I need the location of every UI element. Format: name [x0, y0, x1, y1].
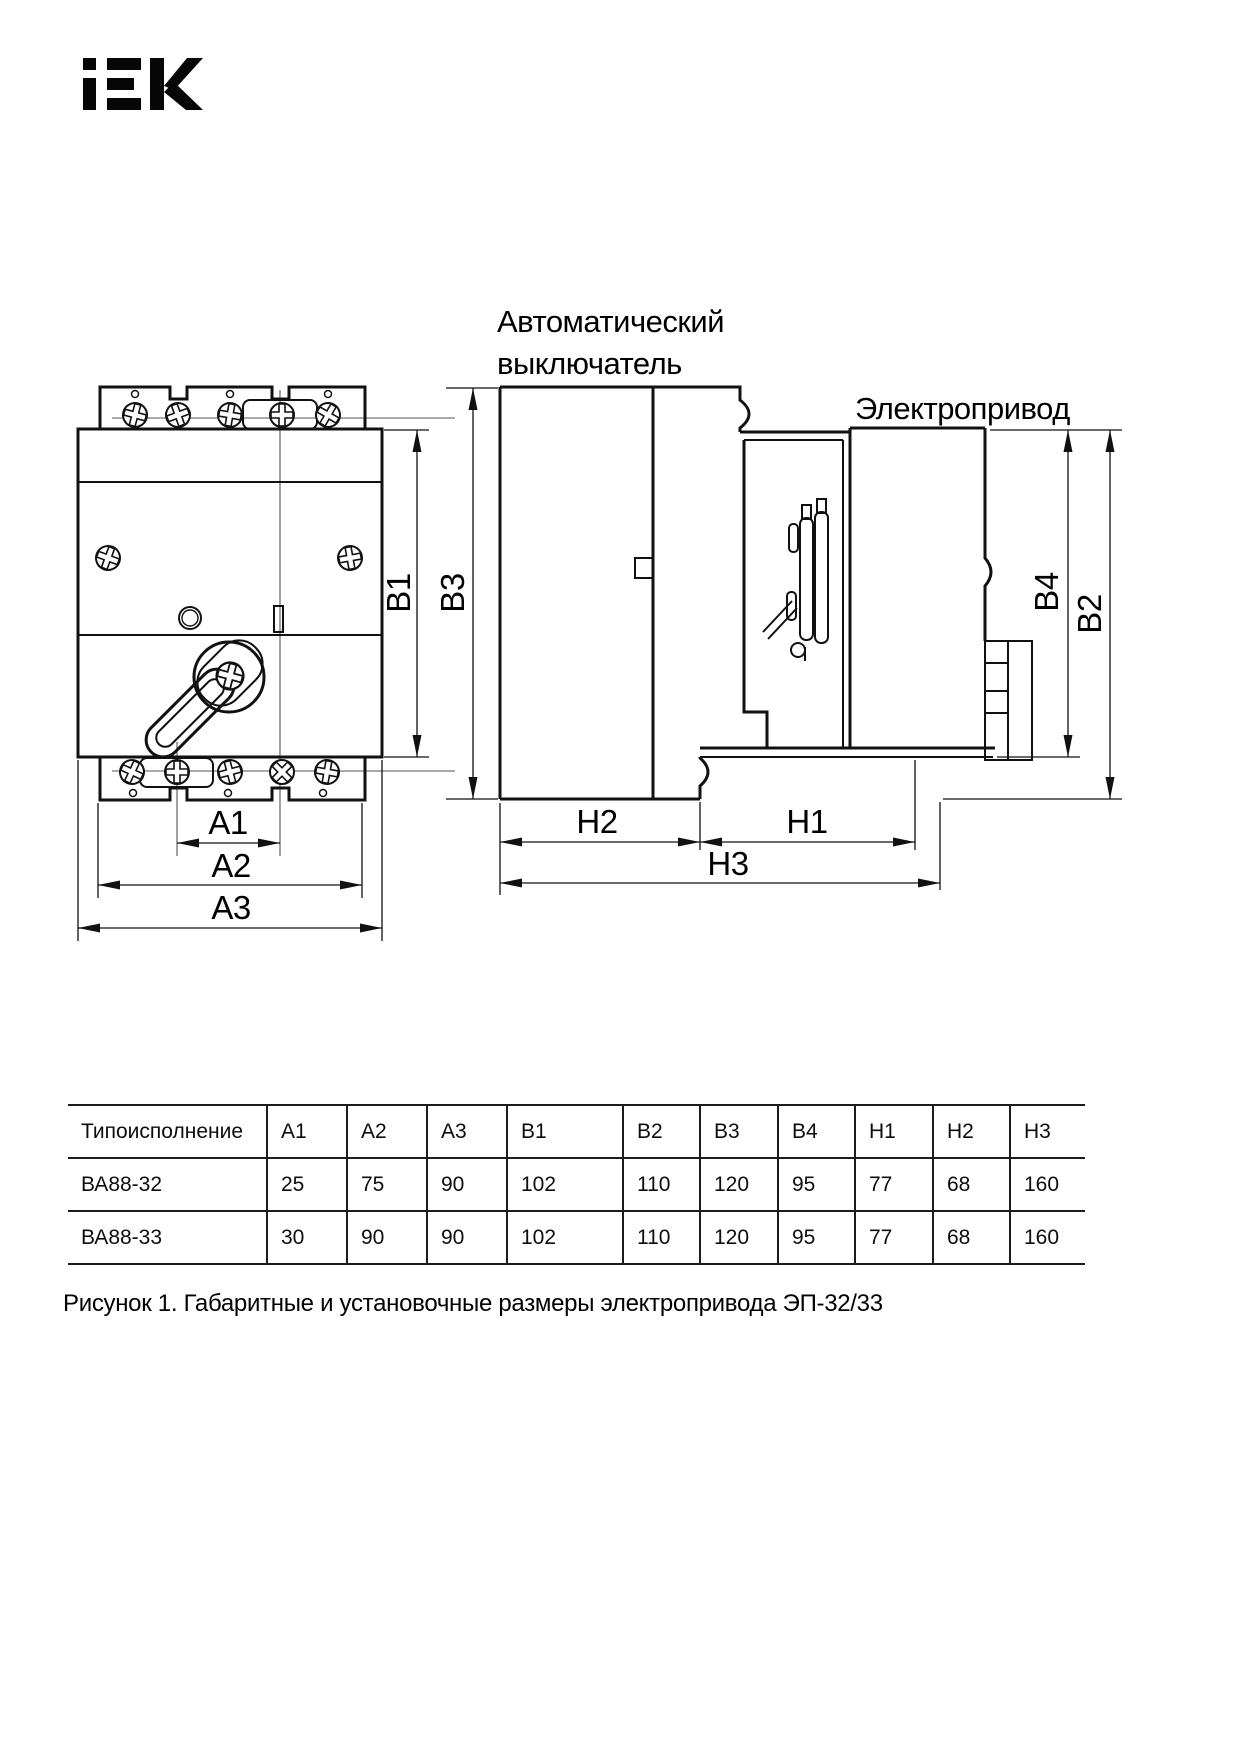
- dim-label-h1: H1: [786, 803, 827, 840]
- table-row: ВА88-33309090102110120957768160: [68, 1211, 1085, 1264]
- value-cell: 120: [700, 1211, 778, 1264]
- dim-label-b4: B4: [1028, 572, 1065, 612]
- logo-i-bar: [83, 78, 96, 110]
- dim-a1: A1: [177, 804, 280, 848]
- page: Автоматический выключатель Электропривод: [0, 0, 1237, 1747]
- dim-h3: H3: [500, 802, 940, 890]
- drive-side-profile: [843, 428, 1032, 760]
- dim-label-a1: A1: [208, 804, 247, 841]
- table-row: ВА88-32257590102110120957768160: [68, 1158, 1085, 1211]
- logo-e-mid: [107, 78, 134, 90]
- column-header-a2: A2: [347, 1105, 427, 1158]
- value-cell: 77: [855, 1158, 933, 1211]
- column-header-b4: B4: [778, 1105, 855, 1158]
- logo-k-lower-arm: [164, 82, 203, 110]
- column-header-h3: H3: [1010, 1105, 1085, 1158]
- column-header-type: Типоисполнение: [68, 1105, 267, 1158]
- dim-label-h3: H3: [707, 845, 748, 882]
- value-cell: 75: [347, 1158, 427, 1211]
- value-cell: 68: [933, 1158, 1010, 1211]
- drive-title: Электропривод: [855, 391, 1070, 426]
- value-cell: 102: [507, 1211, 623, 1264]
- indicator-window: [179, 606, 283, 632]
- logo-k-bar: [150, 58, 164, 110]
- value-cell: 110: [623, 1211, 700, 1264]
- dim-label-b2: B2: [1071, 594, 1108, 633]
- logo-e-bot: [107, 98, 141, 110]
- value-cell: 90: [347, 1211, 427, 1264]
- column-header-a1: A1: [267, 1105, 347, 1158]
- logo-i-dot: [83, 58, 96, 70]
- side-view: [500, 387, 1032, 799]
- value-cell: 95: [778, 1158, 855, 1211]
- terminal-screw-icons: [93, 399, 364, 789]
- dim-label-a3: A3: [211, 889, 250, 926]
- column-header-h2: H2: [933, 1105, 1010, 1158]
- value-cell: 120: [700, 1158, 778, 1211]
- dim-b3: B3: [434, 388, 498, 799]
- dim-label-b1: B1: [380, 573, 417, 612]
- column-header-h1: H1: [855, 1105, 933, 1158]
- breaker-title-line1: Автоматический: [497, 304, 724, 339]
- iek-logo: [83, 58, 203, 110]
- mounting-holes: [130, 391, 332, 797]
- value-cell: 160: [1010, 1158, 1085, 1211]
- value-cell: 160: [1010, 1211, 1085, 1264]
- dim-b1: B1: [380, 430, 429, 757]
- divider-step: [635, 558, 653, 578]
- breaker-side-profile: [500, 387, 995, 799]
- type-cell: ВА88-32: [68, 1158, 267, 1211]
- value-cell: 77: [855, 1211, 933, 1264]
- front-view: [78, 387, 455, 856]
- column-header-b1: B1: [507, 1105, 623, 1158]
- logo-e-top: [107, 58, 141, 70]
- dim-label-h2: H2: [576, 803, 617, 840]
- dim-h2: H2: [500, 802, 700, 895]
- value-cell: 25: [267, 1158, 347, 1211]
- value-cell: 110: [623, 1158, 700, 1211]
- column-header-b2: B2: [623, 1105, 700, 1158]
- value-cell: 102: [507, 1158, 623, 1211]
- dim-b4: B4: [990, 430, 1122, 757]
- value-cell: 90: [427, 1211, 507, 1264]
- column-header-b3: B3: [700, 1105, 778, 1158]
- figure-caption: Рисунок 1. Габаритные и установочные раз…: [63, 1290, 883, 1318]
- breaker-title-line2: выключатель: [497, 346, 682, 381]
- dim-h1: H1: [700, 760, 915, 850]
- table-header-row: ТипоисполнениеA1A2A3B1B2B3B4H1H2H3: [68, 1105, 1085, 1158]
- type-cell: ВА88-33: [68, 1211, 267, 1264]
- dim-label-b3: B3: [434, 573, 471, 612]
- technical-drawing: Автоматический выключатель Электропривод: [0, 0, 1237, 985]
- value-cell: 30: [267, 1211, 347, 1264]
- rotary-handle: [139, 631, 272, 764]
- dim-label-a2: A2: [211, 847, 250, 884]
- breaker-front-body: [78, 429, 382, 757]
- value-cell: 95: [778, 1211, 855, 1264]
- dimensions-table: ТипоисполнениеA1A2A3B1B2B3B4H1H2H3 ВА88-…: [68, 1104, 1085, 1265]
- coupling-linkage: [763, 499, 828, 661]
- value-cell: 90: [427, 1158, 507, 1211]
- column-header-a3: A3: [427, 1105, 507, 1158]
- logo-k-upper-arm: [164, 58, 203, 90]
- value-cell: 68: [933, 1211, 1010, 1264]
